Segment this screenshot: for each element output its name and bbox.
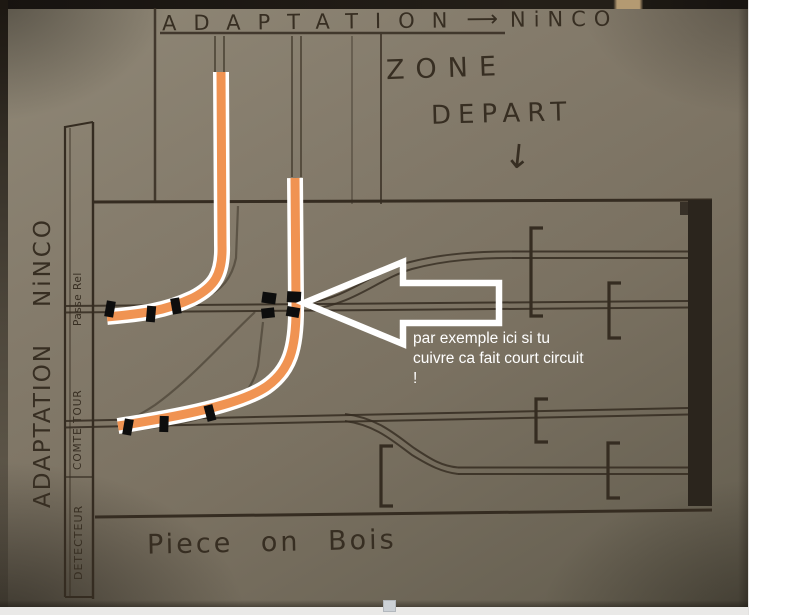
board-outline [93, 200, 712, 517]
short-circuit-annotation: par exemple ici si tu cuivre ca fait cou… [413, 329, 584, 389]
top-banner-word-left: ADAPTATION [162, 8, 465, 35]
bottom-band [0, 607, 800, 615]
board-right-edge-bar [680, 200, 712, 506]
top-banner-label: ADAPTATION ⟶ NiNCO [162, 6, 619, 36]
column-label-passe-rel: Passe Rel [72, 272, 84, 326]
zone-label: ZONE [385, 51, 507, 86]
column-label-comte-tour: COMTE TOUR [72, 389, 84, 470]
down-arrow-icon: ↓ [502, 136, 534, 178]
bottom-label-piece-bois: Piece on Bois [147, 524, 397, 560]
annotation-line-1: par exemple ici si tu [413, 329, 584, 349]
right-arrow-icon: ⟶ [466, 7, 498, 32]
depart-label: DEPART [431, 97, 574, 131]
side-label-adaptation: ADAPTATION [30, 343, 56, 508]
highlighted-track-upper [104, 72, 222, 322]
plan-photo: ADAPTATION ⟶ NiNCO ZONE DEPART ↓ ADAPTAT… [0, 0, 748, 607]
right-band [748, 0, 800, 615]
column-label-detecteur: DETECTEUR [72, 505, 85, 580]
annotation-line-3: ! [413, 369, 584, 389]
annotation-line-2: cuivre ca fait court circuit [413, 349, 584, 369]
resize-handle[interactable] [383, 600, 396, 612]
top-banner-word-right: NiNCO [510, 6, 619, 31]
side-label-ninco: NiNCO [30, 217, 56, 307]
track-plan-drawing [0, 0, 748, 607]
